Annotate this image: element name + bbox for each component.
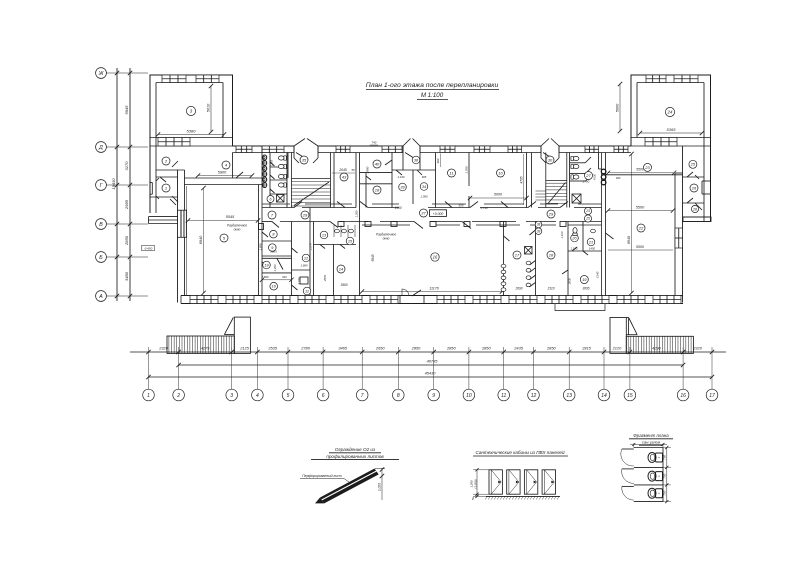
svg-text:3: 3 xyxy=(230,393,233,399)
svg-text:12: 12 xyxy=(531,393,537,399)
svg-text:2690: 2690 xyxy=(514,287,522,291)
svg-text:2320: 2320 xyxy=(158,346,168,351)
svg-text:11: 11 xyxy=(501,393,506,399)
svg-text:5000: 5000 xyxy=(494,193,502,197)
svg-text:300: 300 xyxy=(616,176,621,180)
svg-text:4290: 4290 xyxy=(652,346,661,351)
svg-text:2850: 2850 xyxy=(411,346,421,351)
svg-text:6: 6 xyxy=(270,197,272,201)
svg-text:27: 27 xyxy=(585,173,591,178)
svg-text:5010: 5010 xyxy=(207,103,211,112)
svg-text:+0.000: +0.000 xyxy=(433,212,444,216)
svg-text:2535: 2535 xyxy=(267,346,277,351)
svg-text:910: 910 xyxy=(282,275,287,279)
svg-text:11170: 11170 xyxy=(429,287,438,291)
svg-text:10: 10 xyxy=(466,393,472,399)
svg-text:5500: 5500 xyxy=(636,168,644,172)
svg-text:20: 20 xyxy=(571,236,577,240)
svg-text:1,570: 1,570 xyxy=(309,243,313,250)
svg-text:2650: 2650 xyxy=(375,346,385,351)
svg-text:29: 29 xyxy=(302,212,308,217)
svg-text:11: 11 xyxy=(305,289,309,293)
svg-text:Фрагмент плана: Фрагмент плана xyxy=(633,433,669,438)
svg-text:2645: 2645 xyxy=(338,168,347,172)
svg-text:1,450: 1,450 xyxy=(273,264,277,271)
svg-text:39: 39 xyxy=(537,229,541,233)
svg-text:38: 38 xyxy=(537,223,541,227)
svg-text:А: А xyxy=(98,294,103,300)
svg-text:7: 7 xyxy=(361,393,364,399)
svg-text:3695: 3695 xyxy=(582,287,589,291)
svg-text:19: 19 xyxy=(582,277,587,282)
svg-text:5000: 5000 xyxy=(616,103,620,112)
svg-text:9: 9 xyxy=(432,393,435,399)
svg-text:1450: 1450 xyxy=(589,247,596,251)
svg-text:3960: 3960 xyxy=(340,283,347,287)
svg-text:4: 4 xyxy=(256,393,259,399)
svg-text:окно: окно xyxy=(383,237,390,241)
svg-text:(1,050): (1,050) xyxy=(474,479,478,488)
svg-text:2955: 2955 xyxy=(323,274,327,282)
svg-text:16: 16 xyxy=(433,255,438,260)
svg-text:2: 2 xyxy=(176,393,180,399)
svg-text:40785: 40785 xyxy=(427,359,439,364)
svg-text:5: 5 xyxy=(287,393,290,399)
svg-text:Сантехнические кабины из ПВХ п: Сантехнические кабины из ПВХ панелей xyxy=(475,449,564,455)
svg-text:10: 10 xyxy=(498,170,503,175)
svg-text:2630: 2630 xyxy=(568,277,572,285)
svg-text:11: 11 xyxy=(449,170,453,175)
svg-text:23: 23 xyxy=(644,165,650,170)
svg-text:34: 34 xyxy=(422,185,426,189)
svg-text:5900: 5900 xyxy=(218,171,227,175)
svg-text:25: 25 xyxy=(690,162,696,167)
svg-text:2850: 2850 xyxy=(481,346,491,351)
svg-text:2815: 2815 xyxy=(581,346,591,351)
svg-text:сан.узлов: сан.узлов xyxy=(642,440,660,445)
svg-text:Перфорированный лист: Перфорированный лист xyxy=(302,474,342,478)
svg-text:3140: 3140 xyxy=(596,271,600,278)
svg-text:4275: 4275 xyxy=(201,346,210,351)
svg-text:15430: 15430 xyxy=(111,178,116,190)
svg-text:2310: 2310 xyxy=(546,287,554,291)
svg-text:В: В xyxy=(99,222,103,228)
svg-text:35: 35 xyxy=(302,157,307,162)
svg-text:45430: 45430 xyxy=(425,371,437,376)
svg-text:5945: 5945 xyxy=(124,105,129,115)
svg-text:2995: 2995 xyxy=(124,199,129,210)
svg-text:2435: 2435 xyxy=(513,346,523,351)
svg-text:5365: 5365 xyxy=(667,127,677,132)
svg-text:2790: 2790 xyxy=(582,180,590,184)
svg-text:17: 17 xyxy=(709,393,715,399)
svg-text:-0.450: -0.450 xyxy=(144,246,153,250)
svg-text:2320: 2320 xyxy=(692,346,702,351)
svg-text:2780: 2780 xyxy=(300,346,310,351)
svg-text:План 1-ого этажа после перепла: План 1-ого этажа после перепланировки xyxy=(366,82,499,89)
svg-text:2850: 2850 xyxy=(124,235,129,246)
svg-text:21: 21 xyxy=(588,240,593,244)
svg-text:13: 13 xyxy=(566,393,572,399)
svg-text:18: 18 xyxy=(549,252,554,257)
svg-text:3065: 3065 xyxy=(270,250,277,254)
svg-text:1,580: 1,580 xyxy=(421,195,428,199)
svg-text:2120: 2120 xyxy=(612,346,622,351)
svg-text:750: 750 xyxy=(663,490,667,495)
svg-text:5500: 5500 xyxy=(636,245,644,249)
svg-text:1: 1 xyxy=(147,393,150,399)
svg-text:2850: 2850 xyxy=(446,346,456,351)
svg-text:окно: окно xyxy=(234,228,241,232)
svg-text:25: 25 xyxy=(585,217,590,221)
svg-text:37: 37 xyxy=(421,210,426,215)
svg-text:2,190: 2,190 xyxy=(397,175,405,179)
svg-text:1,685: 1,685 xyxy=(301,264,308,268)
svg-text:750: 750 xyxy=(663,473,667,478)
svg-text:15: 15 xyxy=(627,393,633,399)
svg-text:8940: 8940 xyxy=(627,236,631,244)
svg-text:1: 1 xyxy=(165,185,167,190)
svg-text:43: 43 xyxy=(342,174,347,179)
svg-text:22: 22 xyxy=(638,225,644,230)
svg-text:5500: 5500 xyxy=(636,206,645,210)
svg-text:26: 26 xyxy=(691,185,697,190)
svg-text:М 1:100: М 1:100 xyxy=(421,92,444,99)
svg-text:740: 740 xyxy=(372,141,377,145)
svg-text:24: 24 xyxy=(667,110,673,115)
svg-text:905: 905 xyxy=(422,175,427,179)
svg-text:555: 555 xyxy=(458,204,463,208)
svg-text:4705: 4705 xyxy=(520,176,524,183)
svg-text:50: 50 xyxy=(351,168,355,172)
svg-text:16: 16 xyxy=(680,393,686,399)
svg-text:30: 30 xyxy=(548,157,553,162)
svg-text:5845: 5845 xyxy=(371,254,375,261)
svg-text:3480: 3480 xyxy=(124,271,129,281)
svg-text:2125: 2125 xyxy=(239,346,249,351)
svg-text:5380: 5380 xyxy=(187,129,197,134)
svg-text:2850: 2850 xyxy=(546,346,556,351)
svg-text:1,740: 1,740 xyxy=(480,206,488,210)
svg-text:Ограждение О2 из: Ограждение О2 из xyxy=(335,447,376,452)
svg-text:18: 18 xyxy=(375,187,380,192)
svg-text:2,720: 2,720 xyxy=(297,277,301,285)
svg-text:28: 28 xyxy=(692,207,697,211)
svg-text:17: 17 xyxy=(515,252,520,257)
svg-text:23: 23 xyxy=(585,209,590,213)
svg-text:3465: 3465 xyxy=(338,346,347,351)
svg-text:1900: 1900 xyxy=(394,206,401,210)
svg-text:8940: 8940 xyxy=(199,235,203,244)
svg-text:1,700: 1,700 xyxy=(465,166,469,174)
svg-text:профилированных листов: профилированных листов xyxy=(326,454,384,459)
svg-text:6: 6 xyxy=(322,393,325,399)
svg-text:1,020: 1,020 xyxy=(378,483,382,491)
svg-text:3170: 3170 xyxy=(124,161,129,171)
svg-text:900: 900 xyxy=(436,158,440,163)
svg-text:1,385: 1,385 xyxy=(270,159,274,166)
svg-text:750: 750 xyxy=(663,455,667,460)
svg-text:29: 29 xyxy=(548,211,554,216)
svg-text:40: 40 xyxy=(375,161,380,166)
svg-text:14: 14 xyxy=(601,393,607,399)
svg-text:8: 8 xyxy=(397,393,400,399)
svg-text:1,150: 1,150 xyxy=(571,247,578,251)
svg-text:14: 14 xyxy=(339,266,344,271)
svg-text:1,300: 1,300 xyxy=(355,210,359,217)
svg-text:1,100: 1,100 xyxy=(560,231,564,238)
svg-text:4150: 4150 xyxy=(593,173,597,180)
svg-text:1,880: 1,880 xyxy=(259,243,263,250)
svg-text:5545: 5545 xyxy=(226,215,235,219)
svg-text:Д: Д xyxy=(98,145,103,151)
svg-text:2880: 2880 xyxy=(366,166,370,174)
